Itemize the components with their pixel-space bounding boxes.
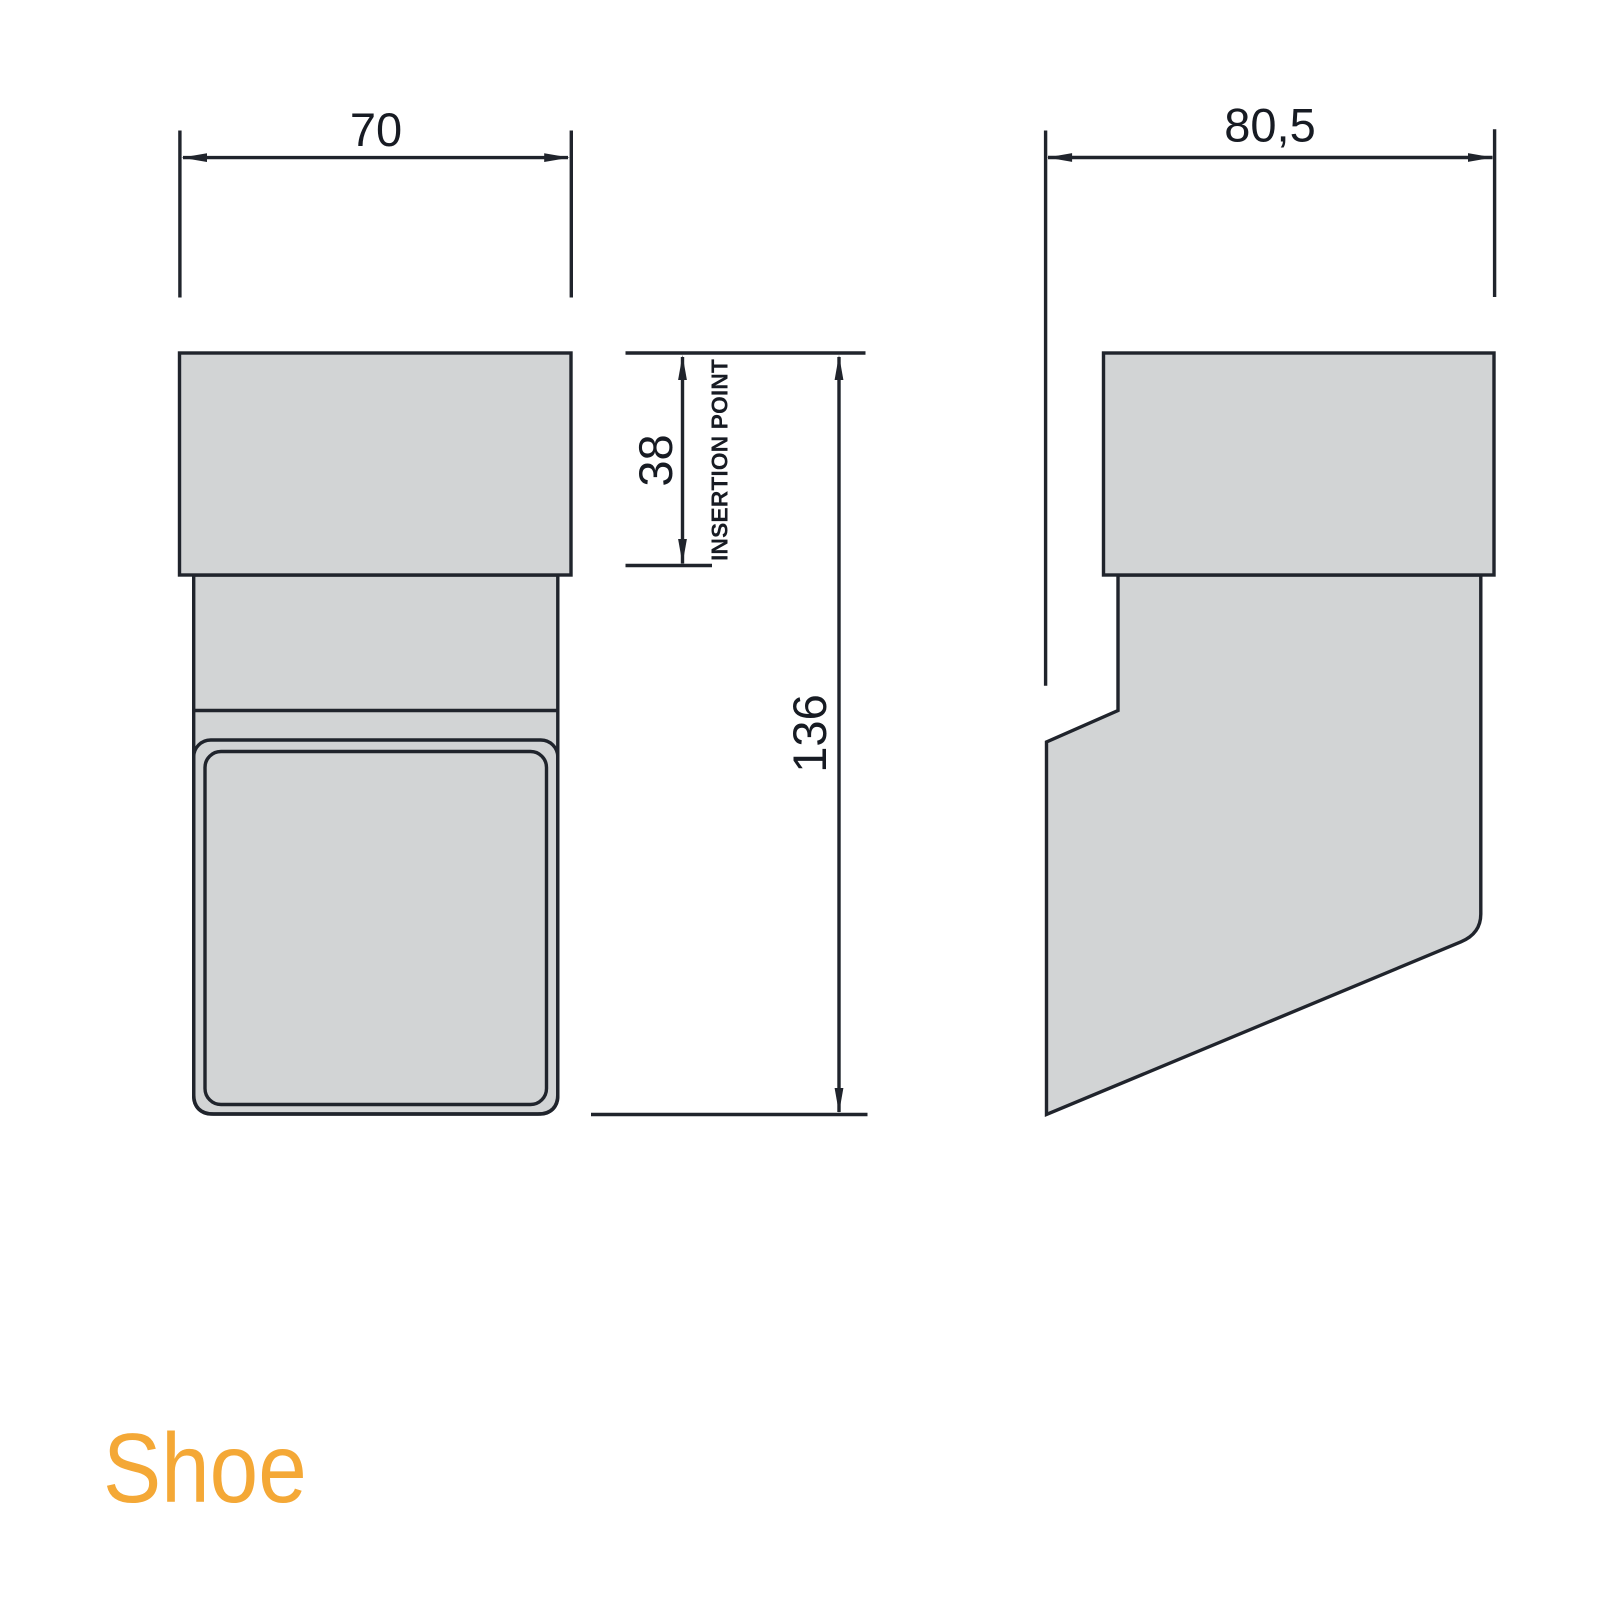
svg-text:136: 136 — [783, 694, 836, 772]
svg-text:INSERTION POINT: INSERTION POINT — [707, 359, 733, 561]
svg-text:70: 70 — [350, 103, 402, 156]
svg-text:38: 38 — [629, 434, 682, 486]
svg-text:80,5: 80,5 — [1224, 99, 1315, 152]
